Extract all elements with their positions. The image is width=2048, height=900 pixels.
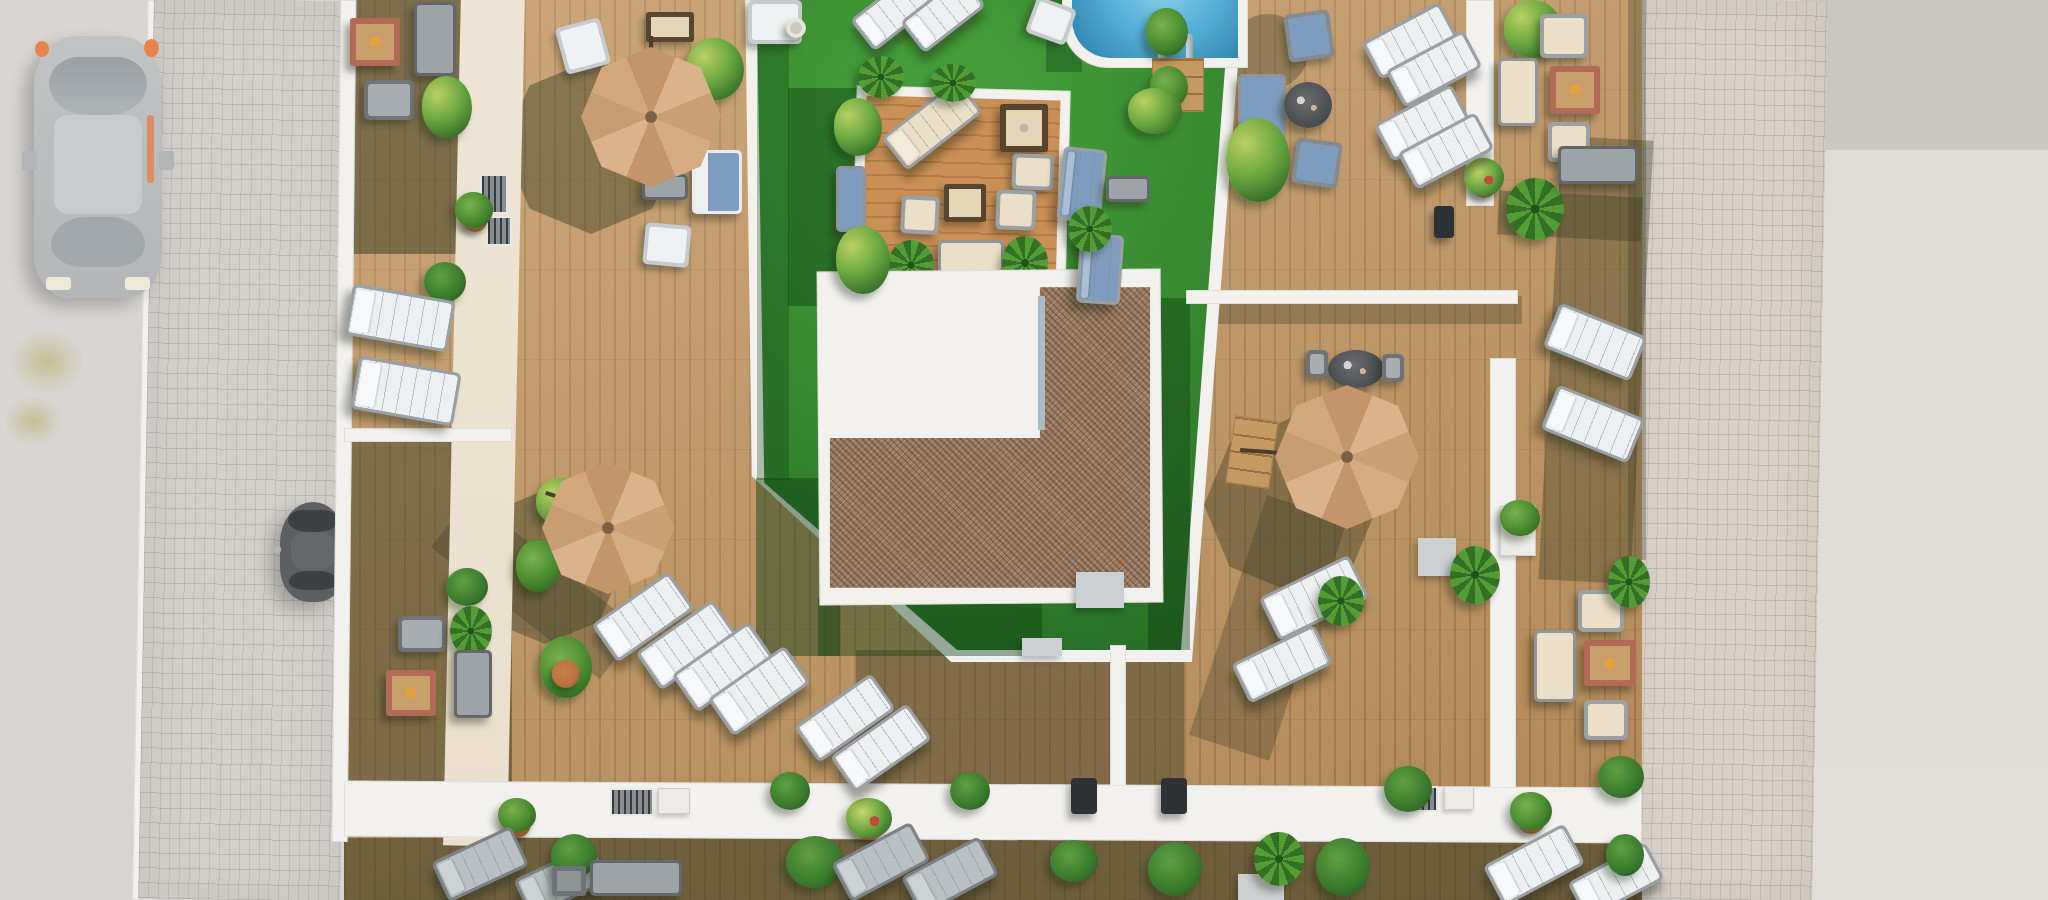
skylight-grate	[486, 216, 512, 246]
courtyard-step	[1022, 638, 1062, 656]
plant	[1450, 546, 1500, 604]
dining-table	[1284, 82, 1332, 128]
fire-pit-table	[1584, 640, 1636, 686]
paver-sidewalk-east	[1620, 0, 1828, 900]
outdoor-sofa	[938, 240, 1004, 274]
paver-sidewalk-west	[138, 0, 356, 900]
coffee-table	[944, 184, 986, 222]
plant	[1318, 576, 1364, 626]
plant	[1598, 756, 1644, 798]
aerial-render	[0, 0, 2048, 900]
outdoor-sofa	[454, 650, 492, 718]
barbecue-grill	[1434, 206, 1454, 238]
outdoor-armchair	[1584, 700, 1628, 740]
plant	[1128, 88, 1182, 134]
fallen-leaves	[10, 330, 84, 394]
plant	[1316, 838, 1370, 896]
outdoor-sofa	[590, 860, 682, 896]
plant	[1464, 158, 1504, 196]
outdoor-armchair	[1283, 9, 1335, 63]
plant	[498, 798, 536, 832]
shadow	[818, 598, 1042, 656]
coffee-table	[786, 18, 806, 38]
plant	[1146, 8, 1188, 56]
shadow	[1628, 0, 1646, 560]
outdoor-sofa	[1534, 630, 1576, 702]
plant	[1068, 206, 1112, 252]
parked-car	[34, 36, 162, 298]
shadow	[1800, 0, 2048, 150]
terrace-divider-wall	[1490, 358, 1516, 840]
plant	[1510, 792, 1552, 830]
plant	[1148, 842, 1202, 896]
parasol	[581, 47, 721, 187]
outdoor-sofa	[1558, 146, 1638, 184]
skylight-strip	[1038, 296, 1045, 430]
outdoor-armchair	[398, 616, 446, 652]
outdoor-armchair	[1382, 354, 1404, 382]
coffee-table	[552, 866, 586, 896]
outdoor-armchair	[1011, 153, 1054, 190]
plant	[1050, 840, 1098, 882]
plant	[1506, 178, 1564, 240]
plant	[858, 56, 904, 98]
outdoor-armchair	[642, 222, 691, 268]
outdoor-armchair	[995, 189, 1036, 230]
plant	[1254, 832, 1304, 886]
plant	[834, 98, 882, 156]
outdoor-sofa	[1498, 58, 1538, 126]
outdoor-armchair	[364, 80, 414, 120]
plant	[846, 798, 892, 838]
rooftop-box	[658, 788, 690, 814]
outdoor-armchair	[1540, 14, 1588, 58]
plant	[1606, 834, 1644, 876]
parasol	[542, 462, 674, 594]
fire-pit-table	[1000, 104, 1048, 152]
plant	[422, 76, 472, 138]
plant	[1608, 556, 1650, 608]
skylight-grate	[610, 788, 654, 816]
outdoor-armchair	[900, 195, 940, 235]
outdoor-sofa	[836, 166, 866, 232]
fallen-leaves	[4, 396, 62, 446]
plant	[1384, 766, 1432, 812]
plant	[836, 226, 890, 294]
outdoor-armchair	[1306, 350, 1328, 378]
plant	[770, 772, 810, 810]
terrace-divider-wall	[1186, 290, 1518, 304]
fire-pit-table	[1550, 66, 1600, 114]
plant	[930, 64, 976, 102]
fire-pit-table	[386, 670, 436, 716]
plant	[446, 568, 488, 606]
fire-pit-table	[350, 18, 400, 66]
barbecue-grill	[1071, 778, 1097, 814]
plant	[950, 772, 990, 810]
plant	[1500, 500, 1540, 536]
terrace-divider-wall	[344, 428, 512, 442]
ac-unit	[1076, 572, 1124, 608]
plant	[1226, 118, 1290, 202]
planter-pot	[552, 660, 580, 688]
dining-table	[1328, 350, 1384, 388]
outdoor-armchair	[1291, 137, 1343, 189]
outdoor-sofa	[414, 2, 456, 76]
outdoor-sofa	[1106, 176, 1150, 202]
shadow	[757, 0, 789, 480]
plant	[455, 192, 493, 228]
parasol	[1275, 385, 1419, 529]
rooftop-box	[1444, 786, 1474, 810]
plant	[450, 606, 492, 656]
barbecue-grill	[1161, 778, 1187, 814]
coffee-table	[646, 12, 694, 42]
